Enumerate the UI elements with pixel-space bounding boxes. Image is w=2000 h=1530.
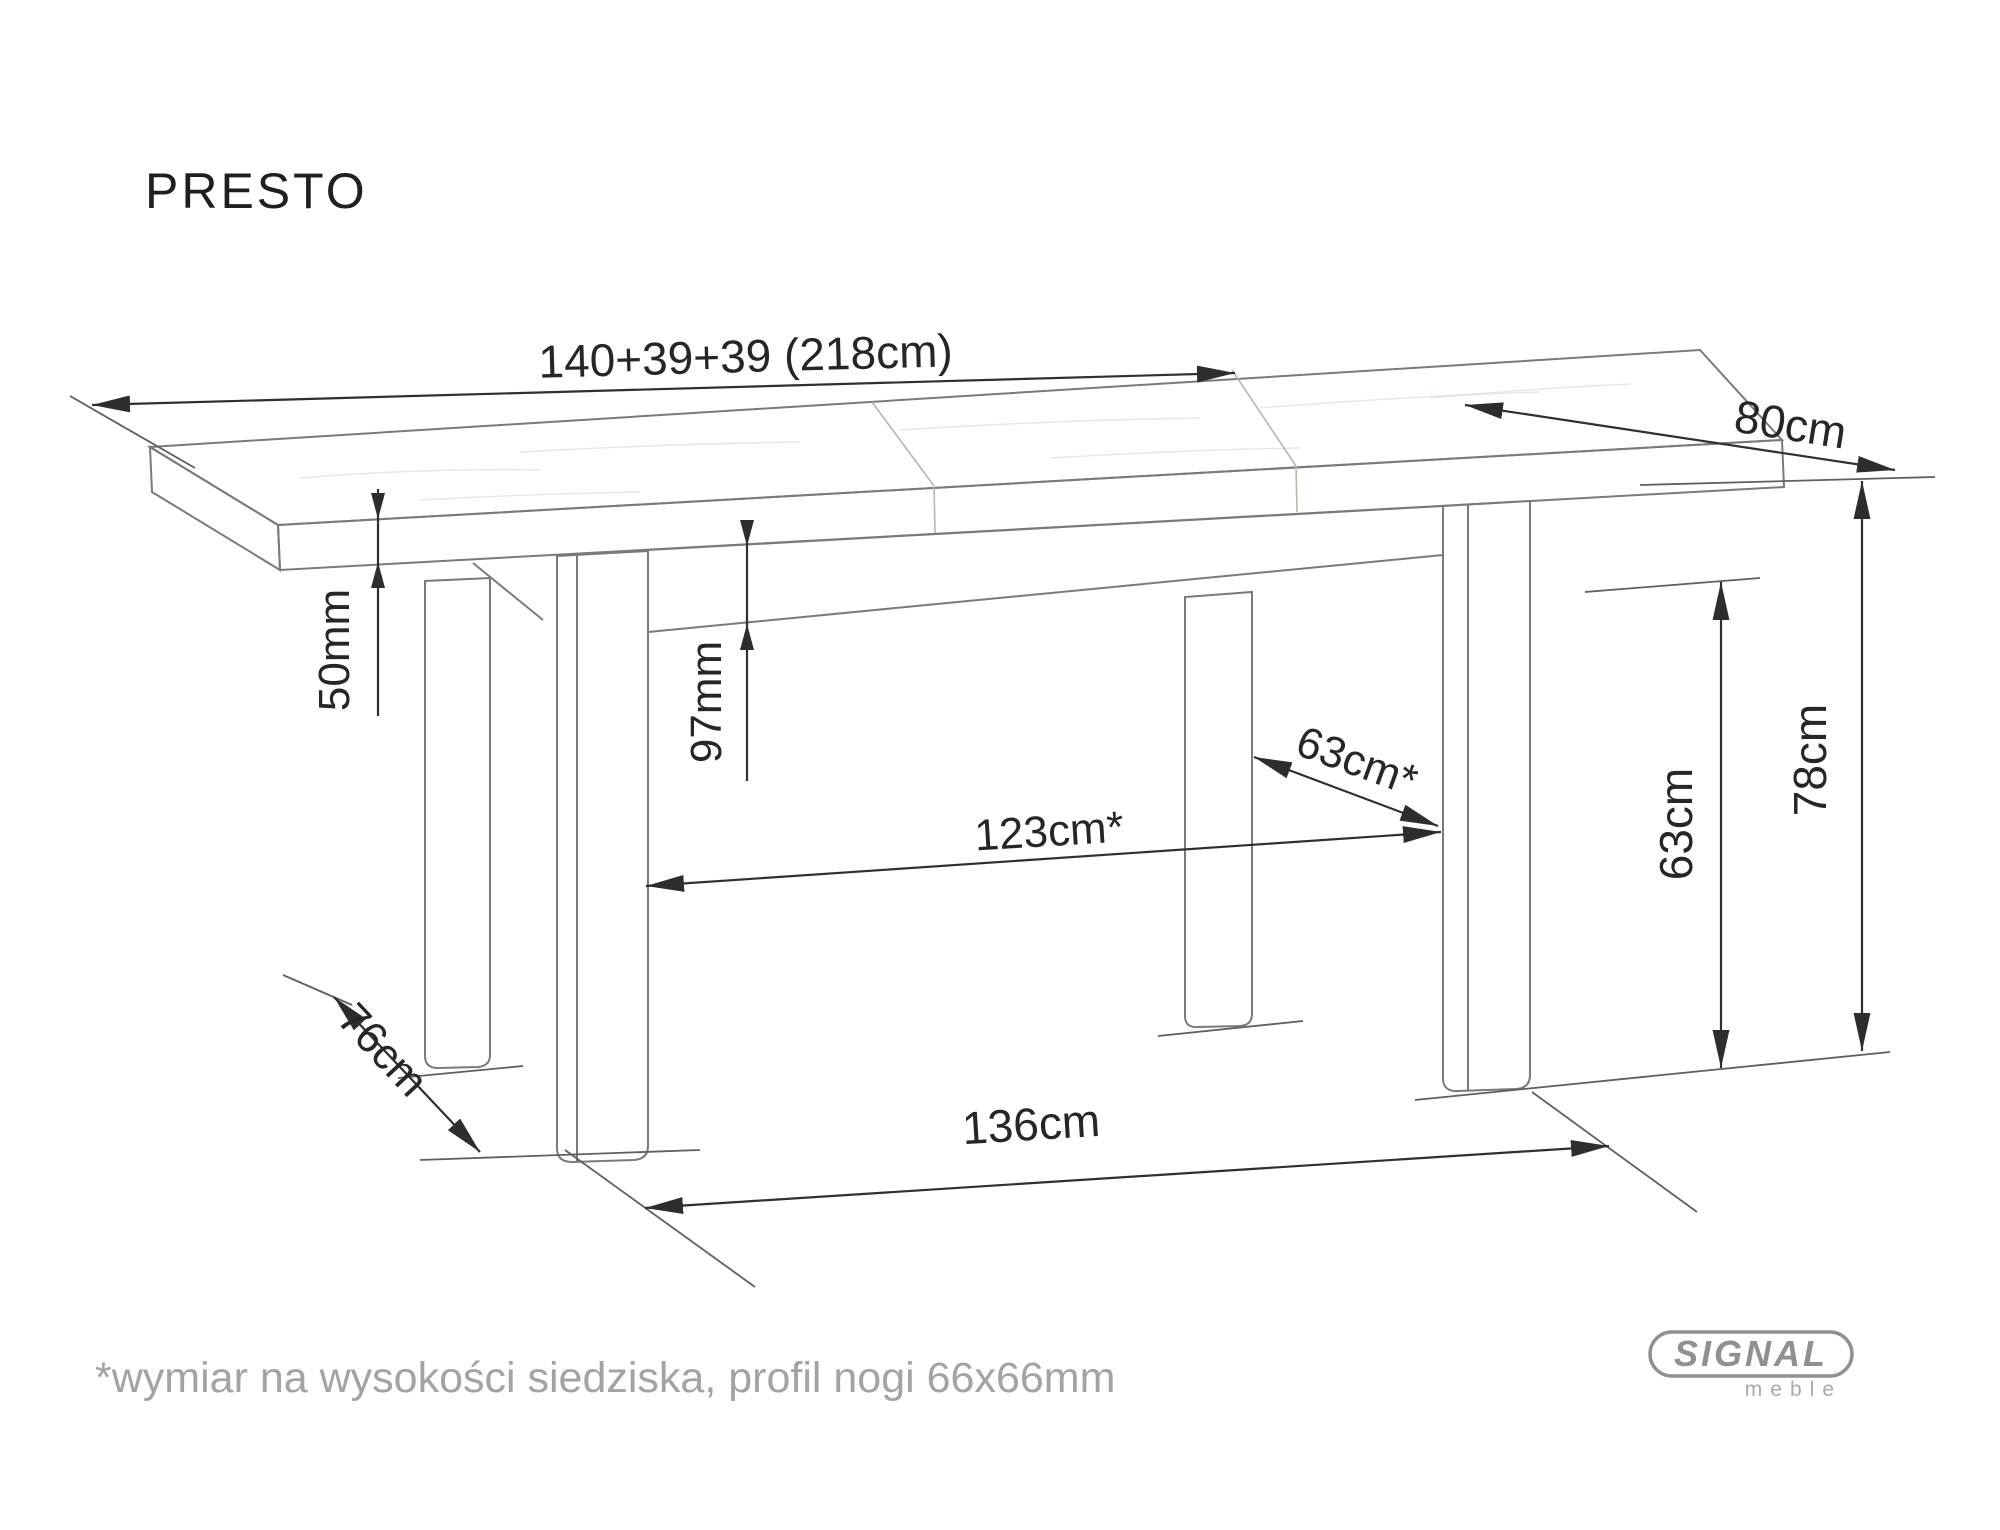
extension-front-left-foot bbox=[565, 1150, 755, 1287]
dimension-label-total-length: 140+39+39 (218cm) bbox=[538, 324, 954, 388]
arrow-up-icon bbox=[371, 562, 385, 588]
side-rail-edge bbox=[473, 563, 543, 620]
dimension-label-height: 78cm bbox=[1784, 704, 1836, 816]
extension-length-left bbox=[70, 396, 195, 468]
tabletop-top-face bbox=[150, 350, 1782, 525]
table-leg-front-left bbox=[557, 551, 648, 1162]
arrow-down-icon bbox=[371, 493, 385, 519]
dimension-label-apron-to-floor: 63cm bbox=[1650, 768, 1702, 880]
dimension-label-top-thickness: 50mm bbox=[310, 589, 359, 711]
ground-line-rear-right bbox=[1158, 1021, 1303, 1036]
table-leg-front-right bbox=[1443, 501, 1530, 1091]
table-leg-rear-left bbox=[425, 578, 490, 1068]
ground-line-front-right bbox=[1415, 1052, 1890, 1100]
arrow-down-icon bbox=[740, 520, 754, 546]
page-title: PRESTO bbox=[145, 163, 368, 219]
dimension-label-leg-spacing-length: 136cm bbox=[961, 1094, 1102, 1154]
logo-subtitle-text: meble bbox=[1745, 1378, 1842, 1401]
dimension-line-leg-spacing-length bbox=[645, 1146, 1609, 1208]
technical-drawing-page: 140+39+39 (218cm) 80cm 50mm 97mm 63cm* 1… bbox=[0, 0, 2000, 1530]
table-apron bbox=[648, 506, 1443, 632]
extension-rear-left-foot bbox=[283, 975, 352, 1005]
leaf-seam-right bbox=[1232, 370, 1296, 466]
table-dimension-drawing: 140+39+39 (218cm) 80cm 50mm 97mm 63cm* 1… bbox=[0, 0, 2000, 1530]
leaf-seam-right-edge bbox=[1296, 466, 1297, 512]
dimension-label-inner-length: 123cm* bbox=[973, 803, 1125, 861]
tabletop-left-end bbox=[150, 447, 280, 570]
leaf-seam-left-edge bbox=[934, 486, 935, 533]
extension-tabletop-level bbox=[1640, 477, 1935, 485]
dimension-label-apron-height: 97mm bbox=[682, 641, 731, 763]
dimension-label-inner-depth: 63cm* bbox=[1290, 717, 1424, 806]
logo-brand-text: SIGNAL bbox=[1674, 1333, 1828, 1374]
extension-apron-bottom bbox=[1585, 578, 1760, 592]
leaf-seam-left bbox=[872, 402, 934, 486]
table-leg-rear-right bbox=[1185, 592, 1252, 1027]
wood-grain-texture bbox=[300, 384, 1630, 500]
extension-front-right-foot bbox=[1532, 1092, 1697, 1212]
footnote-text: *wymiar na wysokości siedziska, profil n… bbox=[95, 1354, 1115, 1402]
brand-logo: SIGNAL meble bbox=[1650, 1332, 1852, 1401]
arrow-up-icon bbox=[740, 624, 754, 650]
tabletop-front-edge bbox=[278, 440, 1784, 570]
